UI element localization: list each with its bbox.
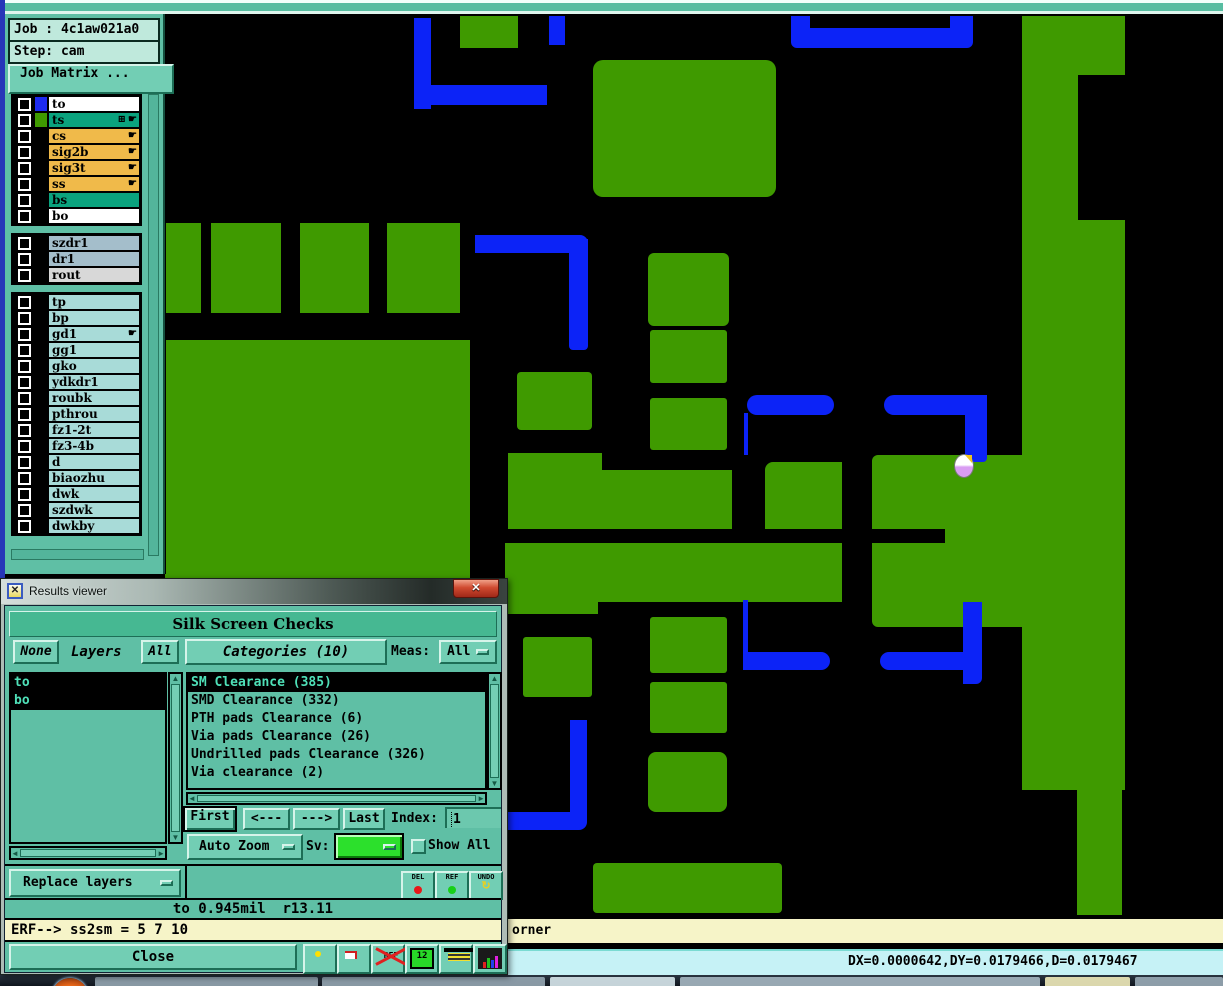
pointer-icon: ☛: [128, 129, 137, 143]
meas-dropdown[interactable]: All: [439, 640, 497, 664]
layer-name: tp: [48, 294, 140, 310]
pcb-copper-shape: [300, 223, 369, 313]
layer-name: dr1: [48, 251, 140, 267]
sidebar-horizontal-scrollbar[interactable]: [11, 549, 144, 560]
dialog-bottom-row: Close REF 12: [5, 942, 501, 972]
pcb-trace-shape: [743, 600, 748, 654]
layer-name: cs☛: [48, 128, 140, 144]
pointer-icon: ☛: [128, 145, 137, 159]
window-close-button[interactable]: ✕: [453, 579, 499, 598]
pcb-trace-shape: [744, 413, 748, 455]
category-item[interactable]: Undrilled pads Clearance (326): [188, 746, 485, 764]
pcb-copper-shape: [505, 543, 842, 602]
histogram-button[interactable]: [473, 944, 507, 974]
pcb-copper-shape: [650, 617, 727, 673]
layer-color-swatch[interactable]: [35, 343, 47, 357]
pcb-copper-shape: [602, 470, 732, 529]
measurement-status-line: to 0.945mil r13.11: [5, 898, 501, 920]
layer-checkbox[interactable]: [18, 237, 31, 250]
cursor-wedge-icon: [965, 455, 972, 463]
taskbar-button[interactable]: [1135, 977, 1223, 986]
pointer-icon: ☛: [128, 327, 137, 341]
layer-checkbox[interactable]: [18, 360, 31, 373]
pcb-trace-shape: [791, 16, 810, 34]
layer-checkbox[interactable]: [18, 146, 31, 159]
layer-color-swatch[interactable]: [35, 209, 47, 223]
layer-group: tpbpgd1☛gg1gkoydkdr1roubkpthroufz1-2tfz3…: [11, 292, 142, 536]
layer-color-swatch[interactable]: [35, 177, 47, 191]
layer-color-swatch[interactable]: [35, 359, 47, 373]
layer-row-to[interactable]: to: [13, 96, 140, 112]
categories-horizontal-scrollbar[interactable]: ◄►: [186, 792, 487, 805]
scroll-right-icon[interactable]: ►: [477, 794, 485, 803]
layers-label: Layers: [71, 644, 122, 660]
pcb-copper-shape: [648, 752, 727, 812]
job-matrix-button[interactable]: Job Matrix ...: [8, 64, 174, 94]
all-button[interactable]: All: [141, 640, 179, 664]
pcb-trace-shape: [950, 16, 973, 40]
categories-listbox[interactable]: SM Clearance (385)SMD Clearance (332)PTH…: [186, 672, 487, 790]
sidebar-vertical-scrollbar[interactable]: [148, 94, 159, 556]
step-label: Step: cam: [10, 40, 158, 62]
layer-row-roubk[interactable]: roubk: [13, 390, 140, 406]
show-all-checkbox[interactable]: [411, 839, 426, 854]
pcb-copper-shape: [650, 330, 727, 383]
layer-name: fz3-4b: [48, 438, 140, 454]
window-title: Results viewer: [29, 584, 107, 598]
meas-label: Meas:: [391, 644, 430, 659]
results-viewer-window: ✕ Results viewer ✕ Silk Screen Checks No…: [0, 578, 508, 975]
layer-row-fz1-2t[interactable]: fz1-2t: [13, 422, 140, 438]
layer-name: ydkdr1: [48, 374, 140, 390]
reference-result-button[interactable]: REF: [435, 871, 469, 900]
layer-color-swatch[interactable]: [35, 236, 47, 250]
pcb-copper-shape: [387, 223, 460, 313]
scroll-right-icon[interactable]: ►: [157, 849, 165, 858]
pointer-icon: ☛: [128, 177, 137, 191]
taskbar-button[interactable]: [680, 977, 1040, 986]
results-layers-listbox[interactable]: tobo: [9, 672, 167, 844]
categories-vertical-scrollbar[interactable]: ▲▼: [487, 672, 502, 790]
layer-group: tots☛⊞cs☛sig2b☛sig3t☛ss☛bsbo: [11, 94, 142, 226]
auto-zoom-label: Auto Zoom: [199, 839, 269, 854]
scrollbar-thumb[interactable]: [490, 684, 499, 778]
pcb-trace-shape: [963, 602, 982, 684]
layer-row-bs[interactable]: bs: [13, 192, 140, 208]
message-status-text: orner: [512, 923, 551, 938]
last-button[interactable]: Last: [343, 808, 385, 830]
next-button[interactable]: --->: [293, 808, 340, 830]
ref-crossed-icon: REF: [376, 948, 406, 964]
layer-checkbox[interactable]: [18, 194, 31, 207]
layer-row-szdwk[interactable]: szdwk: [13, 502, 140, 518]
red-dot-icon: [414, 886, 422, 894]
window-top-edge: [0, 0, 1223, 14]
pcb-copper-shape: [460, 16, 518, 48]
layer-checkbox[interactable]: [18, 210, 31, 223]
auto-zoom-dropdown[interactable]: Auto Zoom: [187, 834, 303, 860]
layer-checkbox[interactable]: [18, 424, 31, 437]
layer-color-swatch[interactable]: [35, 113, 47, 127]
pcb-copper-shape: [211, 223, 281, 313]
layer-checkbox[interactable]: [18, 114, 31, 127]
grid-icon: ⊞: [118, 113, 126, 127]
show-all-label: Show All: [428, 838, 491, 853]
scroll-up-icon[interactable]: ▲: [172, 674, 180, 683]
layer-color-swatch[interactable]: [35, 295, 47, 309]
notes-report-button[interactable]: [439, 944, 473, 974]
scroll-left-icon[interactable]: ◄: [188, 794, 196, 803]
layer-color-swatch[interactable]: [35, 327, 47, 341]
scroll-up-icon[interactable]: ▲: [491, 674, 499, 683]
pcb-trace-shape: [965, 407, 987, 462]
window-titlebar[interactable]: ✕ Results viewer ✕: [1, 579, 507, 604]
section-divider: [185, 866, 187, 900]
layer-row-dwkby[interactable]: dwkby: [13, 518, 140, 534]
layer-name: sig3t☛: [48, 160, 140, 176]
close-button[interactable]: Close: [9, 944, 297, 970]
layer-list: tots☛⊞cs☛sig2b☛sig3t☛ss☛bsboszdr1dr1rout…: [11, 94, 142, 543]
layer-row-sig3t[interactable]: sig3t☛: [13, 160, 140, 176]
layer-row-gg1[interactable]: gg1: [13, 342, 140, 358]
categories-button[interactable]: Categories (10): [185, 639, 387, 665]
layer-name: ss☛: [48, 176, 140, 192]
layer-color-swatch[interactable]: [35, 311, 47, 325]
job-label: Job : 4c1aw021a0: [10, 20, 158, 40]
undo-arrow-icon: ↺: [471, 881, 501, 892]
pcb-trace-shape: [791, 28, 973, 48]
layer-checkbox[interactable]: [18, 269, 31, 282]
layer-color-swatch[interactable]: [35, 407, 47, 421]
layer-color-swatch[interactable]: [35, 471, 47, 485]
windows-taskbar[interactable]: [0, 975, 1223, 986]
layer-color-swatch[interactable]: [35, 252, 47, 266]
delete-result-button[interactable]: DEL: [401, 871, 435, 900]
erf-rule-line: ERF--> ss2sm = 5 7 10: [5, 920, 501, 942]
layer-checkbox[interactable]: [18, 253, 31, 266]
snapshot-tool-button[interactable]: [337, 944, 371, 974]
layer-checkbox[interactable]: [18, 504, 31, 517]
layer-row-ss[interactable]: ss☛: [13, 176, 140, 192]
dropdown-dash-icon: [383, 844, 396, 850]
category-item[interactable]: Via pads Clearance (26): [188, 728, 485, 746]
none-button[interactable]: None: [13, 640, 59, 664]
pcb-copper-shape: [508, 453, 602, 529]
layer-color-swatch[interactable]: [35, 145, 47, 159]
layer-checkbox[interactable]: [18, 408, 31, 421]
crosshair-cursor: [955, 455, 973, 477]
layer-name: roubk: [48, 390, 140, 406]
pcb-copper-shape: [765, 462, 842, 529]
result-layer-item-bo[interactable]: bo: [11, 692, 165, 710]
layer-color-swatch[interactable]: [35, 423, 47, 437]
taskbar-button[interactable]: [322, 977, 545, 986]
layer-name: gd1☛: [48, 326, 140, 342]
pcb-copper-shape: [872, 455, 1022, 529]
layer-color-swatch[interactable]: [35, 455, 47, 469]
layer-row-gd1[interactable]: gd1☛: [13, 326, 140, 342]
layer-name: gko: [48, 358, 140, 374]
dropdown-dash-icon: [476, 649, 489, 655]
category-item[interactable]: SMD Clearance (332): [188, 692, 485, 710]
pcb-copper-shape: [872, 543, 1022, 627]
pcb-copper-shape: [1022, 16, 1078, 790]
layer-color-swatch[interactable]: [35, 193, 47, 207]
pointer-icon: ☛: [128, 161, 137, 175]
start-button-orb[interactable]: [52, 978, 88, 986]
pcb-copper-shape: [165, 340, 470, 596]
pointer-icon: ☛: [128, 113, 137, 127]
job-info-box: Job : 4c1aw021a0 Step: cam: [8, 18, 160, 64]
layer-name: biaozhu: [48, 470, 140, 486]
layer-color-swatch[interactable]: [35, 97, 47, 111]
layer-row-dr1[interactable]: dr1: [13, 251, 140, 267]
taskbar-button[interactable]: [550, 977, 675, 986]
prev-button[interactable]: <---: [243, 808, 290, 830]
layer-color-swatch[interactable]: [35, 375, 47, 389]
pcb-trace-shape: [569, 239, 588, 350]
layer-checkbox[interactable]: [18, 328, 31, 341]
index-label: Index:: [391, 811, 438, 826]
layer-checkbox[interactable]: [18, 296, 31, 309]
first-button[interactable]: First: [183, 806, 237, 832]
category-item[interactable]: Via clearance (2): [188, 764, 485, 782]
pcb-copper-shape: [648, 253, 729, 326]
pcb-copper-shape: [593, 863, 782, 913]
layer-name: bp: [48, 310, 140, 326]
dialog-body: Silk Screen Checks None Layers All Categ…: [4, 605, 502, 973]
scroll-down-icon[interactable]: ▼: [491, 779, 499, 788]
pcb-copper-shape: [1078, 16, 1125, 75]
dropdown-dash-icon: [160, 880, 173, 886]
layer-row-rout[interactable]: rout: [13, 267, 140, 283]
layer-row-sig2b[interactable]: sig2b☛: [13, 144, 140, 160]
taskbar-button[interactable]: [1045, 977, 1130, 986]
layer-name: sig2b☛: [48, 144, 140, 160]
layer-name: fz1-2t: [48, 422, 140, 438]
taskbar-button[interactable]: [95, 977, 318, 986]
layers-horizontal-scrollbar[interactable]: ◄►: [9, 846, 167, 860]
replace-layers-dropdown[interactable]: Replace layers: [9, 869, 181, 897]
layer-checkbox[interactable]: [18, 178, 31, 191]
layer-name: rout: [48, 267, 140, 283]
app-window-icon: ✕: [7, 583, 23, 599]
del-label: DEL: [403, 873, 433, 881]
layer-group: szdr1dr1rout: [11, 233, 142, 285]
layer-name: d: [48, 454, 140, 470]
layer-name: dwkby: [48, 518, 140, 534]
layer-checkbox[interactable]: [18, 130, 31, 143]
result-layer-item-to[interactable]: to: [11, 674, 165, 692]
index-input[interactable]: 1: [445, 807, 501, 828]
undo-button[interactable]: UNDO ↺: [469, 871, 503, 900]
layer-name: to: [48, 96, 140, 112]
category-item[interactable]: SM Clearance (385): [188, 674, 485, 692]
layer-name: szdwk: [48, 502, 140, 518]
layer-row-fz3-4b[interactable]: fz3-4b: [13, 438, 140, 454]
layers-vertical-scrollbar[interactable]: ▲▼: [168, 672, 183, 844]
notes-icon: [444, 948, 474, 952]
layer-checkbox[interactable]: [18, 162, 31, 175]
layer-row-dwk[interactable]: dwk: [13, 486, 140, 502]
numbered-pages-button[interactable]: 12: [405, 944, 439, 974]
layer-checkbox[interactable]: [18, 312, 31, 325]
layer-row-tp[interactable]: tp: [13, 294, 140, 310]
layer-checkbox[interactable]: [18, 520, 31, 533]
scrollbar-thumb[interactable]: [20, 849, 156, 857]
pcb-trace-shape: [549, 16, 565, 45]
scrollbar-thumb[interactable]: [197, 795, 476, 802]
exit-tool-button[interactable]: [303, 944, 337, 974]
layer-color-swatch[interactable]: [35, 129, 47, 143]
pcb-copper-shape: [650, 398, 727, 450]
layer-name: bs: [48, 192, 140, 208]
pcb-copper-shape: [650, 682, 727, 733]
pcb-trace-shape: [414, 85, 547, 105]
layer-color-swatch[interactable]: [35, 161, 47, 175]
pcb-copper-shape: [163, 223, 201, 313]
category-item[interactable]: PTH pads Clearance (6): [188, 710, 485, 728]
histogram-icon: [478, 948, 502, 969]
pcb-copper-shape: [593, 60, 776, 197]
layer-checkbox[interactable]: [18, 456, 31, 469]
layer-checkbox[interactable]: [18, 98, 31, 111]
layer-row-ts[interactable]: ts☛⊞: [13, 112, 140, 128]
layer-row-gko[interactable]: gko: [13, 358, 140, 374]
message-status-bar: orner: [500, 917, 1223, 946]
replace-layers-label: Replace layers: [23, 875, 133, 890]
layers-sidebar: Job : 4c1aw021a0 Step: cam Job Matrix ..…: [5, 14, 165, 574]
layer-row-szdr1[interactable]: szdr1: [13, 235, 140, 251]
index-value: 1: [453, 812, 461, 827]
layer-row-cs[interactable]: cs☛: [13, 128, 140, 144]
green-dot-icon: [448, 886, 456, 894]
pcb-copper-shape: [1077, 788, 1122, 915]
layer-checkbox[interactable]: [18, 488, 31, 501]
layer-checkbox[interactable]: [18, 472, 31, 485]
layer-color-swatch[interactable]: [35, 439, 47, 453]
pcb-copper-shape: [517, 372, 592, 430]
layer-name: ts☛⊞: [48, 112, 140, 128]
coordinates-status-bar: DX=0.0000642,DY=0.0179466,D=0.0179467: [500, 949, 1223, 975]
scroll-down-icon[interactable]: ▼: [172, 833, 180, 842]
index-caret: [451, 812, 452, 827]
clear-reference-button[interactable]: REF: [371, 944, 405, 974]
layer-checkbox[interactable]: [18, 392, 31, 405]
scroll-left-icon[interactable]: ◄: [11, 849, 19, 858]
layer-name: dwk: [48, 486, 140, 502]
layer-row-bo[interactable]: bo: [13, 208, 140, 224]
pcb-trace-shape: [570, 720, 587, 822]
pcb-trace-shape: [743, 652, 830, 670]
layer-color-swatch[interactable]: [35, 487, 47, 501]
pcb-trace-shape: [747, 395, 834, 415]
layer-row-d[interactable]: d: [13, 454, 140, 470]
ref-label: REF: [437, 873, 467, 881]
meas-value: All: [447, 644, 470, 659]
layer-color-swatch[interactable]: [35, 268, 47, 282]
layer-name: bo: [48, 208, 140, 224]
coordinates-text: DX=0.0000642,DY=0.0179466,D=0.0179467: [848, 954, 1138, 969]
sv-label: Sv:: [306, 839, 329, 854]
layer-row-pthrou[interactable]: pthrou: [13, 406, 140, 422]
layer-name: szdr1: [48, 235, 140, 251]
layer-row-ydkdr1[interactable]: ydkdr1: [13, 374, 140, 390]
layer-checkbox[interactable]: [18, 344, 31, 357]
layer-name: pthrou: [48, 406, 140, 422]
layer-row-biaozhu[interactable]: biaozhu: [13, 470, 140, 486]
pcb-copper-shape: [523, 637, 592, 697]
layer-name: gg1: [48, 342, 140, 358]
layer-row-bp[interactable]: bp: [13, 310, 140, 326]
pcb-trace-shape: [508, 812, 587, 830]
dropdown-dash-icon: [282, 844, 295, 850]
layer-color-swatch[interactable]: [35, 391, 47, 405]
scrollbar-thumb[interactable]: [171, 684, 180, 832]
sv-color-dropdown[interactable]: [334, 833, 404, 860]
layer-color-swatch[interactable]: [35, 519, 47, 533]
pages-icon: 12: [410, 948, 434, 969]
pcb-copper-shape: [1078, 220, 1125, 790]
pcb-copper-shape: [505, 600, 598, 614]
checks-header: Silk Screen Checks: [9, 611, 497, 637]
layer-checkbox[interactable]: [18, 376, 31, 389]
layer-color-swatch[interactable]: [35, 503, 47, 517]
layer-checkbox[interactable]: [18, 440, 31, 453]
